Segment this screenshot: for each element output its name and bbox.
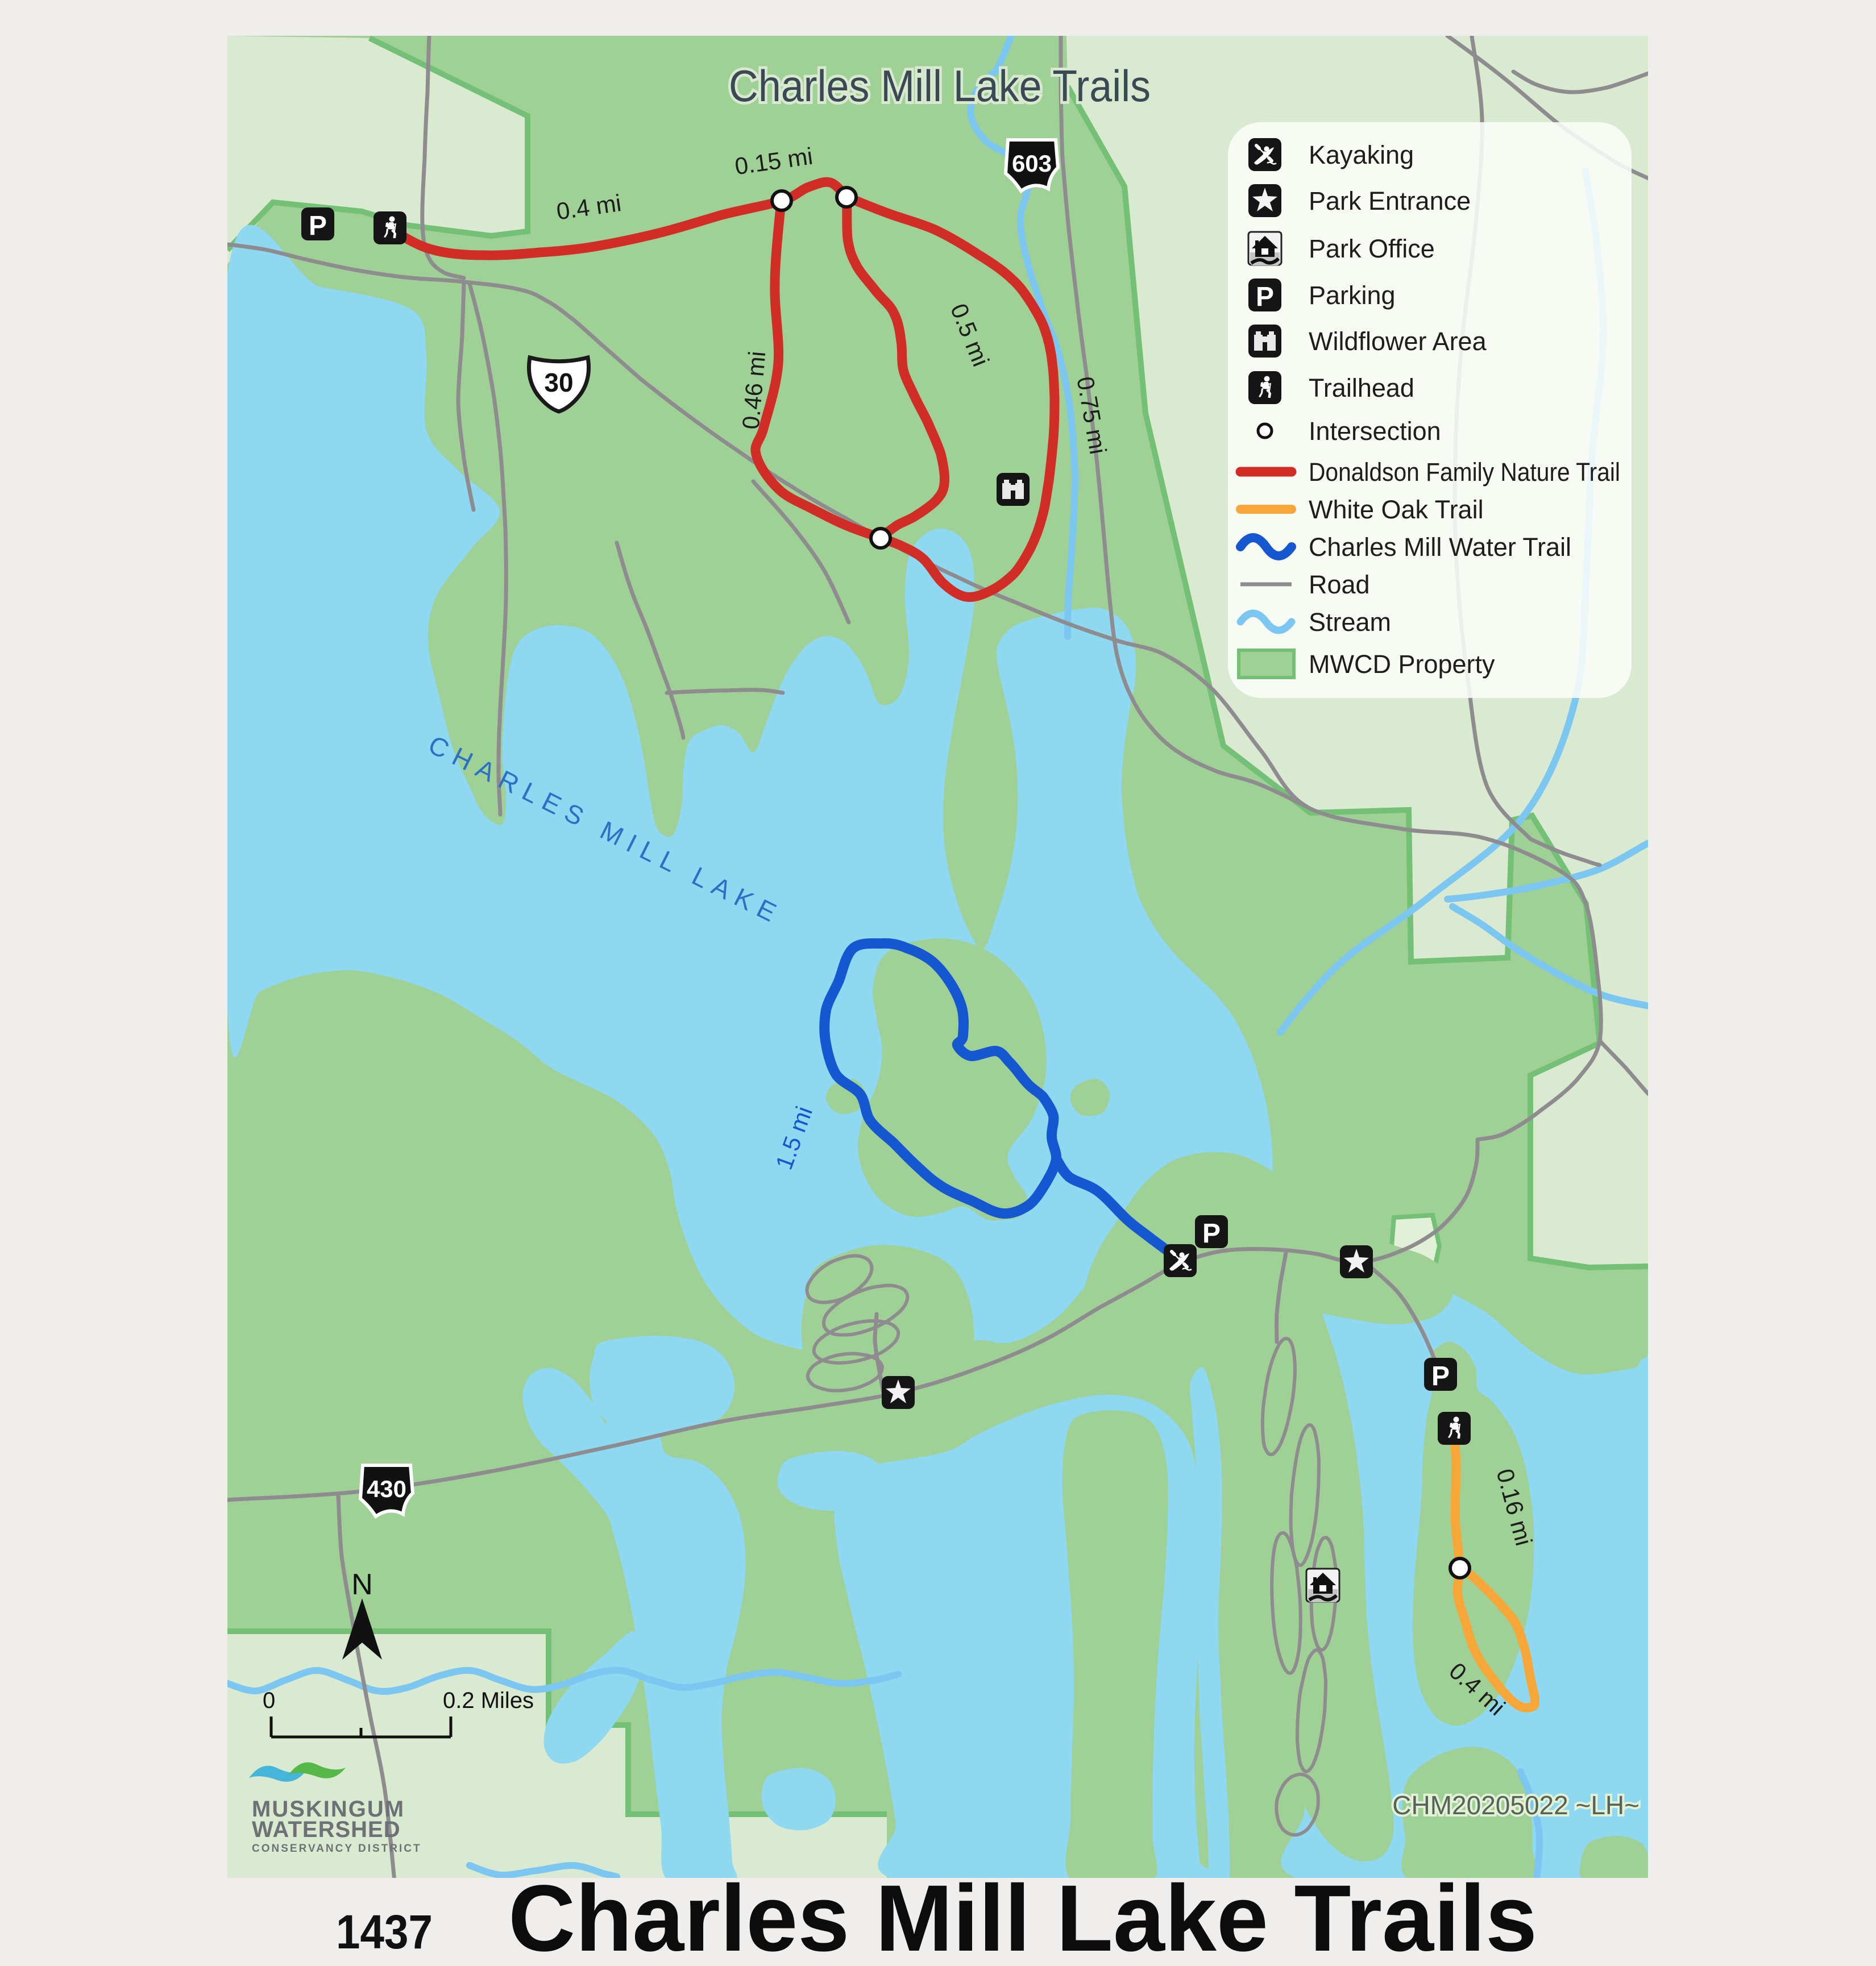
svg-text:0: 0 <box>263 1688 275 1713</box>
svg-text:White Oak Trail: White Oak Trail <box>1309 495 1484 524</box>
svg-text:430: 430 <box>367 1475 406 1502</box>
svg-text:Park Office: Park Office <box>1309 234 1435 263</box>
svg-text:Charles Mill Lake Trails: Charles Mill Lake Trails <box>508 1866 1537 1966</box>
svg-text:CONSERVANCY DISTRICT: CONSERVANCY DISTRICT <box>252 1843 422 1855</box>
svg-text:P: P <box>309 211 327 241</box>
svg-text:CHM20205022 ~LH~: CHM20205022 ~LH~ <box>1392 1790 1640 1820</box>
svg-text:P: P <box>1431 1361 1450 1391</box>
svg-text:P: P <box>1202 1219 1221 1249</box>
svg-text:Kayaking: Kayaking <box>1309 140 1414 169</box>
svg-text:Donaldson Family Nature Trail: Donaldson Family Nature Trail <box>1309 458 1620 487</box>
svg-text:Charles Mill Lake Trails: Charles Mill Lake Trails <box>729 61 1151 111</box>
svg-text:Intersection: Intersection <box>1309 417 1441 446</box>
svg-text:Charles Mill Water Trail: Charles Mill Water Trail <box>1309 533 1571 562</box>
svg-text:1437: 1437 <box>336 1905 433 1959</box>
svg-text:Park Entrance: Park Entrance <box>1309 186 1471 215</box>
svg-text:Wildflower Area: Wildflower Area <box>1309 327 1487 356</box>
svg-text:Road: Road <box>1309 570 1370 599</box>
svg-text:0.2 Miles: 0.2 Miles <box>443 1688 534 1713</box>
svg-text:WATERSHED: WATERSHED <box>252 1817 401 1842</box>
svg-text:603: 603 <box>1012 150 1052 177</box>
svg-text:N: N <box>351 1568 373 1601</box>
svg-text:Parking: Parking <box>1309 281 1396 310</box>
svg-text:P: P <box>1256 282 1274 312</box>
svg-text:30: 30 <box>544 368 573 397</box>
svg-text:MWCD Property: MWCD Property <box>1309 650 1495 679</box>
svg-text:Stream: Stream <box>1309 608 1391 637</box>
svg-text:Trailhead: Trailhead <box>1309 373 1414 402</box>
